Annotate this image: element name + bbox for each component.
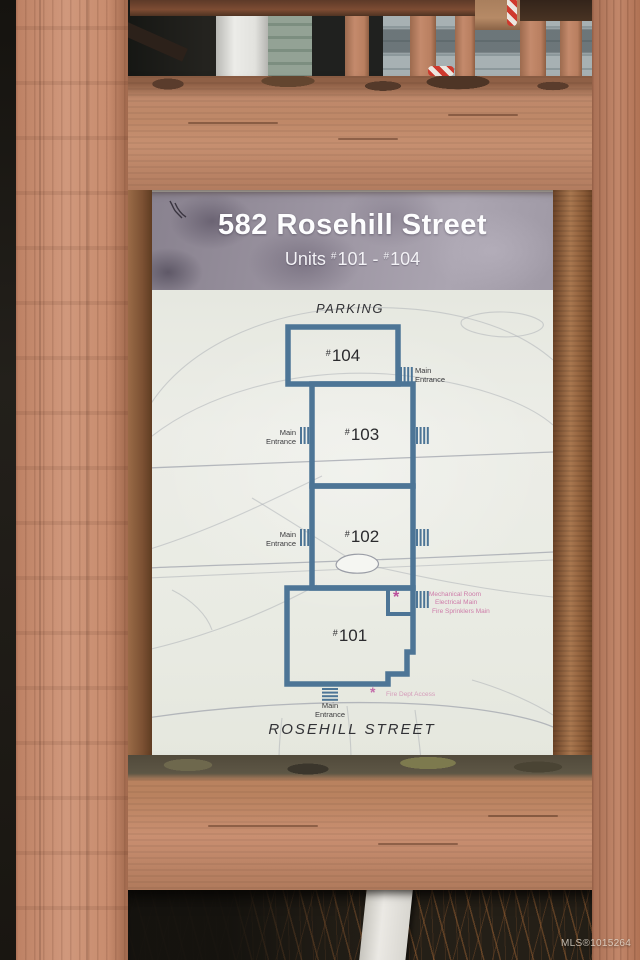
hatch-102-right [416,529,429,546]
wood-beam-top [128,76,592,190]
subtitle-word: Units [285,249,326,269]
entrance-label-101: Main Entrance [309,701,351,719]
unit-label-102: #102 [345,527,379,547]
hatch-103-left [300,427,313,444]
unit-number: 104 [332,346,360,365]
hash-sign: # [345,529,350,539]
mls-watermark: MLS®1015264 [561,938,639,949]
hash-sign: # [384,251,390,262]
sign-subtitle: Units #101 - #104 [152,249,553,270]
site-plan-sign: 582 Rosehill Street Units #101 - #104 [152,190,553,760]
mech-note-line: Fire Sprinklers Main [432,608,519,616]
unit-label-101: #101 [333,626,367,646]
fire-asterisk: * [370,684,375,700]
entrance-label-103: Main Entrance [262,428,296,446]
unit-number: 103 [351,425,379,444]
subtitle-num-a: 101 [337,249,367,269]
mech-note-line: Electrical Main [435,599,519,607]
hatch-101-bottom [322,688,338,701]
wood-crack [338,138,398,140]
wood-post-left [16,0,128,960]
wood-beam-bottom [128,755,592,890]
wood-crack [488,815,558,817]
entrance-label-104: Main Entrance [415,366,449,384]
background-left-edge [0,0,16,960]
striped-ribbon [428,66,454,76]
porch-background [128,0,592,80]
unit-label-104: #104 [326,346,360,366]
mechanical-room-outline [388,588,413,614]
unit-number: 102 [351,527,379,546]
entrance-label-102: Main Entrance [262,530,296,548]
unit-label-103: #103 [345,425,379,445]
wood-crack [188,122,278,124]
frame-inner-right [553,190,592,758]
hash-sign: # [333,628,338,638]
subtitle-separator: - [368,249,384,269]
parking-label: PARKING [290,301,410,316]
white-post-fragment [359,882,413,960]
hatch-103-right [416,427,429,444]
frame-inner-left [128,190,152,758]
sign-header: 582 Rosehill Street Units #101 - #104 [152,192,553,290]
overhead-dark-beam [520,0,592,21]
mechanical-note: Mechanical Room Electrical Main Fire Spr… [429,591,519,616]
site-map: PARKING #104 #103 #102 #101 Main Entranc… [152,290,553,760]
fire-note: Fire Dept Access [386,691,466,699]
mechanical-asterisk: * [393,589,399,607]
hash-sign: # [331,251,337,262]
wood-crack [448,114,518,116]
mech-note-line: Mechanical Room [429,591,519,599]
wood-crack [378,843,458,845]
striped-pole [507,0,517,26]
hash-sign: # [345,427,350,437]
unit-number: 101 [339,626,367,645]
wood-crack [208,825,318,827]
subtitle-num-b: 104 [390,249,420,269]
wood-post-right [592,0,640,960]
railing-top-rail [130,0,475,16]
hash-sign: # [326,348,331,358]
street-label: ROSEHILL STREET [247,721,457,738]
sign-title: 582 Rosehill Street [152,209,553,242]
ground-brush [128,888,592,960]
photo-of-sign: 582 Rosehill Street Units #101 - #104 [0,0,640,960]
hatch-101-right [416,591,429,608]
